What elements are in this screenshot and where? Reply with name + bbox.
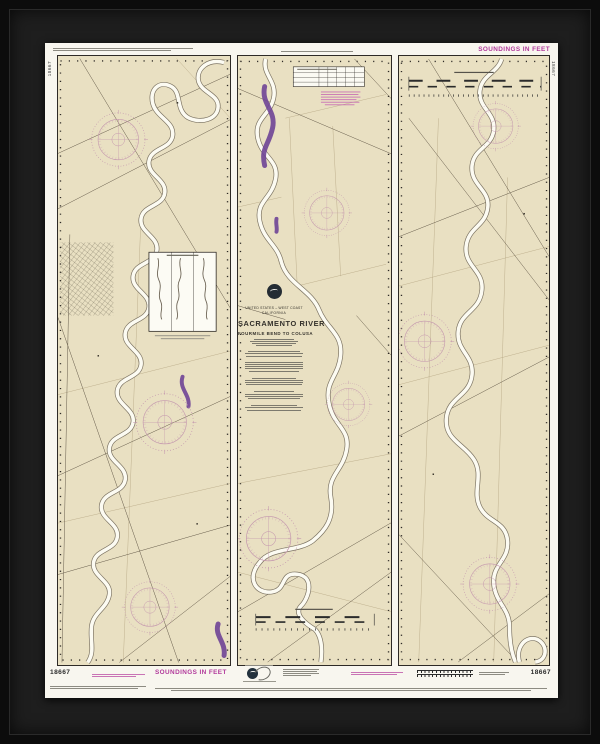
landmark-dots — [433, 213, 525, 475]
illegible-text-line — [92, 676, 136, 677]
illegible-text-line — [245, 353, 303, 354]
edition-note-lines — [53, 46, 203, 53]
illegible-text-line — [247, 410, 301, 411]
compass-rose-icon — [89, 110, 148, 169]
illegible-text-line — [245, 394, 303, 395]
bottom-right-note — [479, 670, 509, 677]
illegible-text-line — [155, 688, 547, 689]
map-panel-right — [398, 55, 550, 666]
soundings-note-bottom: SOUNDINGS IN FEET — [155, 669, 227, 676]
chart-subtitle: FOURMILE BEND TO COLUSA — [238, 331, 310, 336]
illegible-text-line — [246, 384, 302, 385]
town-street-grid — [60, 242, 113, 315]
section-lines — [58, 59, 230, 663]
chart-number-right-edge: 18667 — [551, 61, 556, 76]
illegible-text-line — [248, 398, 300, 399]
illegible-text-line — [245, 362, 303, 363]
magenta-note-bottom — [351, 670, 403, 677]
illegible-text-line — [283, 673, 319, 674]
illegible-text-line — [250, 341, 298, 342]
illegible-text-line — [254, 391, 294, 392]
border-graduation-ticks — [60, 61, 227, 660]
illegible-text-line — [256, 345, 292, 346]
illegible-text-line — [245, 368, 303, 369]
chart-title-block: UNITED STATES – WEST COAST CALIFORNIA SA… — [238, 284, 310, 412]
top-center-note — [281, 49, 353, 53]
illegible-text-line — [50, 688, 138, 689]
anniversary-emblem-icon — [241, 665, 279, 683]
river — [88, 62, 224, 663]
roads — [58, 59, 230, 663]
magenta-link-note — [92, 672, 145, 679]
illegible-text-line — [245, 407, 303, 408]
graphic-scale-bar — [409, 72, 541, 96]
map-panel-middle: UNITED STATES – WEST COAST CALIFORNIA SA… — [237, 55, 392, 666]
compass-rose-icon — [399, 312, 454, 371]
chart-inset — [149, 252, 216, 339]
map-art-right — [399, 56, 549, 665]
disclaimer-fine-print — [155, 686, 547, 693]
map-panel-left — [57, 55, 231, 666]
compass-rose-icon — [238, 506, 301, 571]
illegible-text-line — [245, 364, 303, 365]
distance-table — [293, 67, 364, 87]
chart-number-left-edge: 18667 — [47, 61, 52, 76]
compass-rose-icon — [471, 101, 521, 151]
compass-rose-icon — [460, 554, 519, 613]
bottom-left-fine-print — [50, 684, 150, 691]
illegible-text-line — [53, 48, 193, 49]
illegible-text-line — [351, 672, 403, 673]
illegible-text-line — [351, 674, 397, 675]
illegible-text-line — [245, 366, 303, 367]
chart-sheet: SOUNDINGS IN FEET 18667 18667 — [45, 43, 558, 698]
emblem-caption — [283, 668, 319, 677]
illegible-text-line — [252, 378, 296, 379]
caution-highlight — [182, 377, 225, 656]
illegible-text-line — [252, 343, 296, 344]
illegible-text-line — [245, 396, 303, 397]
illegible-text-line — [248, 351, 300, 352]
illegible-text-line — [479, 674, 505, 675]
illegible-text-line — [251, 405, 297, 406]
illegible-text-line — [53, 50, 171, 51]
compass-rose-icon — [122, 579, 178, 635]
illegible-text-line — [281, 51, 353, 52]
illegible-text-line — [254, 339, 294, 340]
illegible-text-line — [245, 382, 303, 383]
graphic-scale-bar — [256, 609, 374, 630]
chart-title: SACRAMENTO RIVER — [238, 319, 310, 328]
magenta-note — [321, 92, 360, 106]
soundings-note-top: SOUNDINGS IN FEET — [478, 46, 550, 53]
title-state-line: CALIFORNIA — [238, 311, 310, 315]
map-art-left — [58, 56, 230, 665]
noaa-logo-icon — [267, 284, 282, 299]
illegible-text-line — [283, 675, 311, 676]
framed-chart-photo: SOUNDINGS IN FEET 18667 18667 — [0, 0, 600, 744]
illegible-text-line — [283, 671, 317, 672]
illegible-text-line — [50, 686, 146, 687]
border-graduation-ticks — [401, 61, 546, 659]
title-nation-line: UNITED STATES – WEST COAST — [238, 306, 310, 310]
title-block-notes — [238, 339, 310, 411]
illegible-text-line — [171, 690, 531, 691]
chart-number-bottom-left: 18667 — [50, 669, 70, 676]
illegible-text-line — [246, 356, 302, 357]
compass-rose-icon — [302, 188, 352, 238]
illegible-text-line — [249, 371, 299, 372]
illegible-text-line — [245, 380, 303, 381]
chart-number-bottom-right: 18667 — [531, 669, 551, 676]
river-loop — [519, 639, 546, 662]
section-lines — [399, 118, 549, 662]
illegible-text-line — [92, 674, 145, 675]
illegible-text-line — [283, 669, 319, 670]
compass-rose-icon — [325, 381, 372, 428]
illegible-text-line — [479, 672, 509, 673]
micro-scale-ruler — [417, 670, 473, 678]
